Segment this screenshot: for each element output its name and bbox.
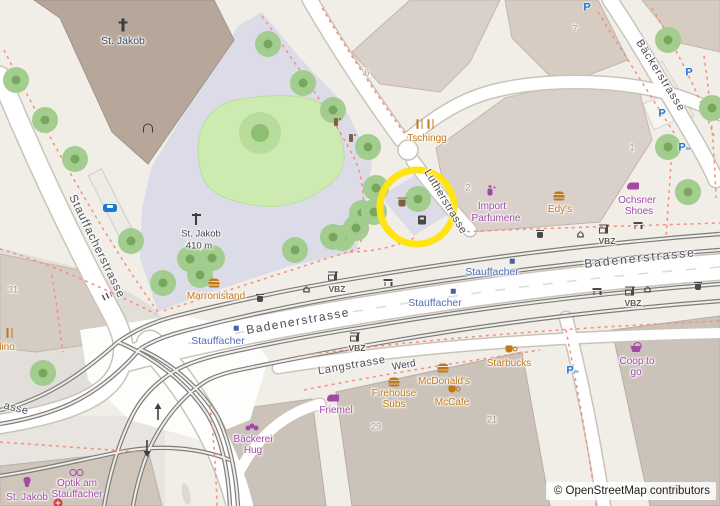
glasses-icon <box>70 469 83 475</box>
bench-icon <box>593 288 602 296</box>
cupcake-icon <box>23 477 32 487</box>
perfume-icon <box>488 189 493 196</box>
attribution-text[interactable]: © OpenStreetMap contributors <box>554 485 710 497</box>
tram-stop-name-label: Stauffacher <box>191 336 245 347</box>
house-number: 31 <box>8 286 18 295</box>
shelter-icon <box>644 284 655 295</box>
guidepost-icon <box>191 213 201 225</box>
tram-stop-marker <box>451 289 456 294</box>
labels-overlay: StauffacherstrasseBadenerstrasseBadeners… <box>0 0 720 506</box>
fountain-icon <box>334 118 338 126</box>
poi-label: McDonald's <box>418 377 470 387</box>
shelter-icon <box>577 229 588 240</box>
parking-icon: P∞ <box>566 366 577 377</box>
poi-label: lino <box>0 343 15 353</box>
house-number: 7 <box>572 25 577 34</box>
coffee-icon <box>399 200 406 207</box>
poi-label: Tschingg <box>407 134 446 144</box>
poi-label: Friemel <box>319 406 352 416</box>
taxi-icon <box>103 204 117 212</box>
shoe-icon <box>627 183 639 190</box>
bench-icon <box>634 222 643 230</box>
poi-label: Bäckerei <box>234 435 273 445</box>
bin-icon <box>257 296 263 302</box>
poi-label: Shoes <box>625 207 653 217</box>
poi-label: Parfumerie <box>472 214 521 224</box>
street-name-label: Bäckerstrasse <box>633 38 686 114</box>
tram-operator-label: VBZ <box>625 299 642 308</box>
poi-label: Subs <box>383 400 406 410</box>
poi-label: Ochsner <box>618 196 656 206</box>
street-name-label: Badenerstrasse <box>584 246 697 270</box>
house-number: 1 <box>629 144 634 153</box>
tram-stop-name-label: Stauffacher <box>465 267 519 278</box>
house-number: 29 <box>371 423 381 432</box>
cup-icon <box>506 346 513 353</box>
poi-label: Marronistand <box>187 292 245 302</box>
cross-icon <box>118 19 129 32</box>
shoe-icon <box>327 395 339 402</box>
attribution[interactable]: © OpenStreetMap contributors <box>546 482 716 500</box>
poi-label: Coop to <box>619 357 654 367</box>
tram-stop-marker <box>234 326 239 331</box>
tram-stop-name-label: Stauffacher <box>408 298 462 309</box>
place-label: St. Jakob <box>181 229 221 239</box>
rails-icon <box>102 291 113 300</box>
poi-label: Starbucks <box>487 359 531 369</box>
restaurant-icon <box>417 119 424 129</box>
poi-label: Import <box>478 202 506 212</box>
poi-label: St. Jakob <box>6 493 48 503</box>
parking-icon: P <box>685 68 692 79</box>
house-number: 6 <box>364 69 369 78</box>
fountain-icon <box>349 134 353 142</box>
atm-icon <box>418 216 426 225</box>
poi-label: go <box>630 368 641 378</box>
poi-label: Hug <box>244 446 262 456</box>
poi-label: McCafe <box>435 398 469 408</box>
street-name-label: Badenerstrasse <box>245 306 351 336</box>
cup-icon <box>449 386 456 393</box>
house-number: 2 <box>465 184 470 193</box>
poi-label: Firehouse <box>372 389 416 399</box>
restaurant-icon <box>428 119 435 129</box>
burger-icon <box>389 378 400 387</box>
restaurant-icon <box>7 328 14 338</box>
tram-operator-label: VBZ <box>329 285 346 294</box>
parking-icon: P <box>658 109 665 120</box>
tram-stop-marker <box>510 259 515 264</box>
poi-label: Edy's <box>548 205 572 215</box>
tram-operator-label: VBZ <box>599 237 616 246</box>
house-number: 21 <box>487 416 497 425</box>
street-name-label: asse <box>2 401 29 418</box>
tramstop-icon <box>350 333 360 344</box>
bin-icon <box>695 284 701 290</box>
parking-icon: P <box>583 3 590 14</box>
tramstop-icon <box>625 287 635 298</box>
tram-operator-label: VBZ <box>349 344 366 353</box>
street-name-label: Langstrasse <box>317 355 387 378</box>
bench-icon <box>384 279 393 287</box>
place-label: Werd <box>391 359 416 373</box>
tramstop-icon <box>599 225 609 236</box>
place-label: 410 m <box>186 241 212 251</box>
street-name-label: Lutherstrasse <box>421 168 468 236</box>
door-icon <box>143 124 153 133</box>
map-view[interactable]: StauffacherstrasseBadenerstrasseBadeners… <box>0 0 720 506</box>
parking-icon: P∞ <box>678 143 689 154</box>
shelter-icon <box>303 284 314 295</box>
burger-icon <box>209 279 220 288</box>
basket-icon <box>631 342 642 352</box>
street-name-label: Stauffacherstrasse <box>66 193 126 300</box>
burger-icon <box>554 192 565 201</box>
bicycle-glyph: ∞ <box>686 146 690 153</box>
pharmacy-icon <box>54 499 63 506</box>
place-label: St. Jakob <box>101 36 145 47</box>
burger-icon <box>438 364 449 373</box>
bakery-icon <box>250 424 255 429</box>
poi-label: Optik am <box>57 479 97 489</box>
tramstop-icon <box>328 272 338 283</box>
bicycle-glyph: ∞ <box>574 369 578 376</box>
bin-icon <box>537 232 543 238</box>
